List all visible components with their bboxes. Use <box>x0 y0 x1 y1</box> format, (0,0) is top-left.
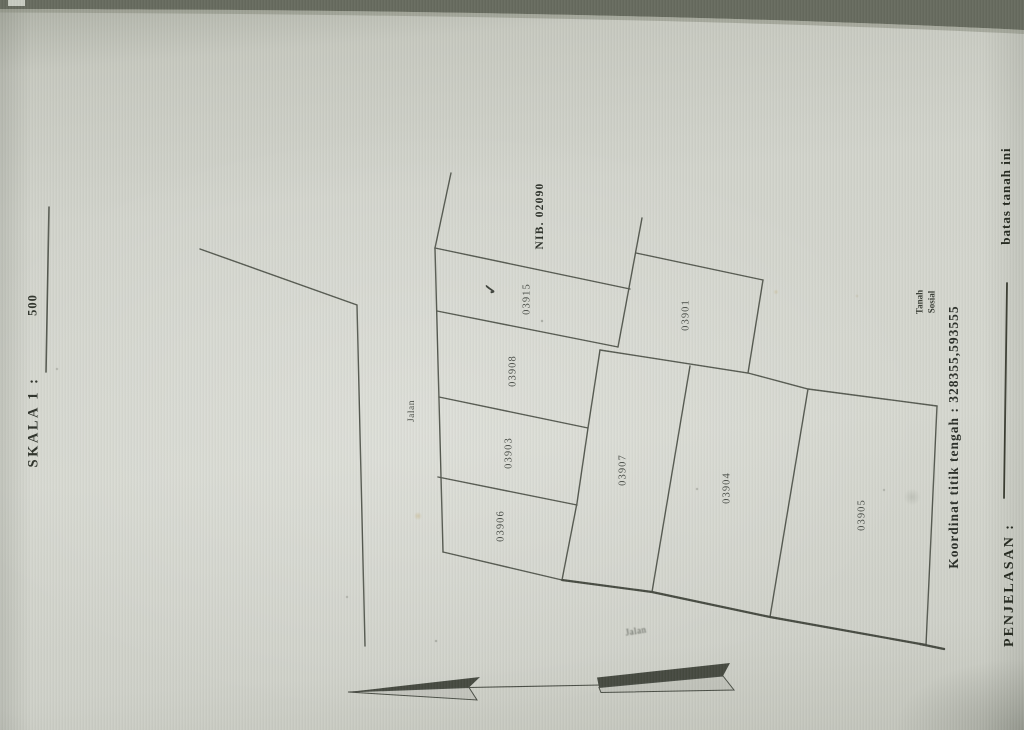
parcel-label: 03901 <box>681 299 692 331</box>
road-label: Jalan <box>625 624 647 637</box>
photographed-survey-document: SKALA 1 : 500 NIB. 02090 03915 03908 039… <box>0 0 1024 730</box>
scale-value: 500 <box>26 294 41 316</box>
document-labels: SKALA 1 : 500 NIB. 02090 03915 03908 039… <box>0 0 1024 730</box>
parcel-label: 03908 <box>508 355 519 387</box>
nib-number-label: NIB. 02090 <box>534 183 546 250</box>
parcel-label: 03904 <box>722 472 733 504</box>
area-label-line1: Tanah <box>914 290 926 314</box>
center-coordinates-label: Koordinat titik tengah : 328355,593555 <box>946 305 962 568</box>
checkmark-icon: ✓ <box>482 283 501 296</box>
parcel-label: 03905 <box>857 499 868 531</box>
parcel-label: 03906 <box>496 510 507 542</box>
road-label: Jalan <box>407 400 417 422</box>
area-label: Tanah Sosial <box>914 290 937 314</box>
parcel-label: 03915 <box>522 283 533 315</box>
scale-label: SKALA 1 : <box>26 377 43 468</box>
area-label-line2: Sosial <box>926 290 938 314</box>
legend-entry: batas tanah ini <box>998 147 1014 244</box>
legend-title: PENJELASAN : <box>1002 523 1018 647</box>
parcel-label: 03903 <box>504 437 515 469</box>
parcel-label: 03907 <box>618 454 629 486</box>
